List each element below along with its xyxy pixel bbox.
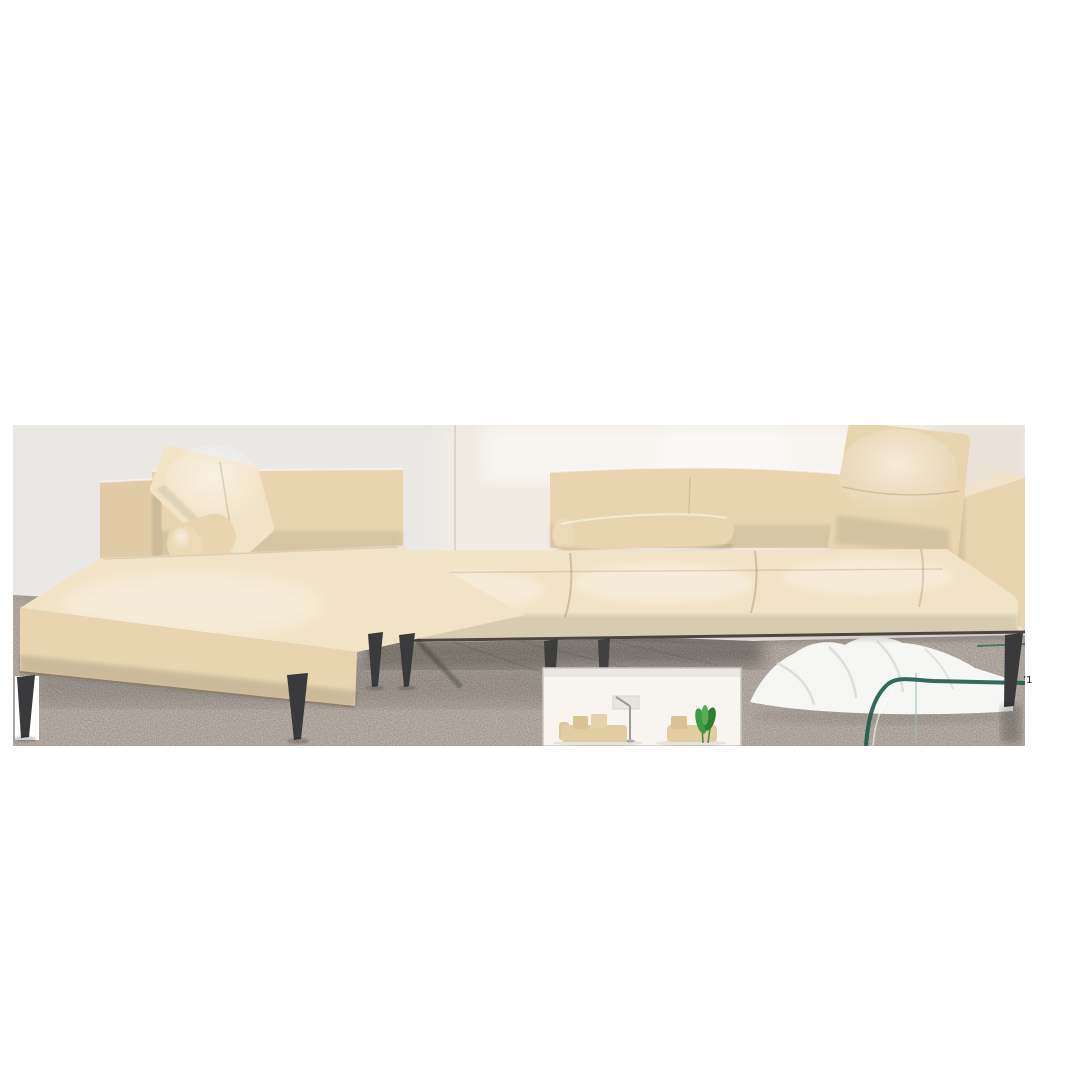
sofa-photo bbox=[13, 425, 1025, 746]
cushion-highlight bbox=[783, 559, 953, 595]
leg-shadow bbox=[14, 736, 36, 742]
pillow-highlight bbox=[165, 445, 261, 525]
cushion-highlight bbox=[573, 563, 753, 603]
leg-shadow bbox=[366, 686, 384, 691]
artifact-mark: ’1 bbox=[1023, 676, 1033, 686]
mini-cushion bbox=[591, 714, 607, 728]
back-pillow-right bbox=[835, 429, 963, 556]
product-photo-canvas: ’1 bbox=[0, 0, 1080, 1080]
bolster-pillow-center bbox=[551, 512, 734, 551]
bolster-highlight bbox=[172, 528, 190, 550]
pillow-highlight bbox=[838, 429, 958, 517]
mini-cushion bbox=[671, 716, 687, 729]
thumbnail-inner-shadow bbox=[544, 669, 740, 677]
inset-room-thumbnail[interactable] bbox=[543, 668, 741, 746]
sofa-photo-svg bbox=[13, 425, 1025, 746]
leg-shadow bbox=[287, 738, 309, 744]
plant-leaf bbox=[702, 705, 709, 725]
leg-shadow bbox=[398, 686, 416, 691]
leg-shadow bbox=[1001, 705, 1021, 743]
bolster-body bbox=[551, 512, 734, 551]
mini-cushion bbox=[573, 716, 588, 729]
